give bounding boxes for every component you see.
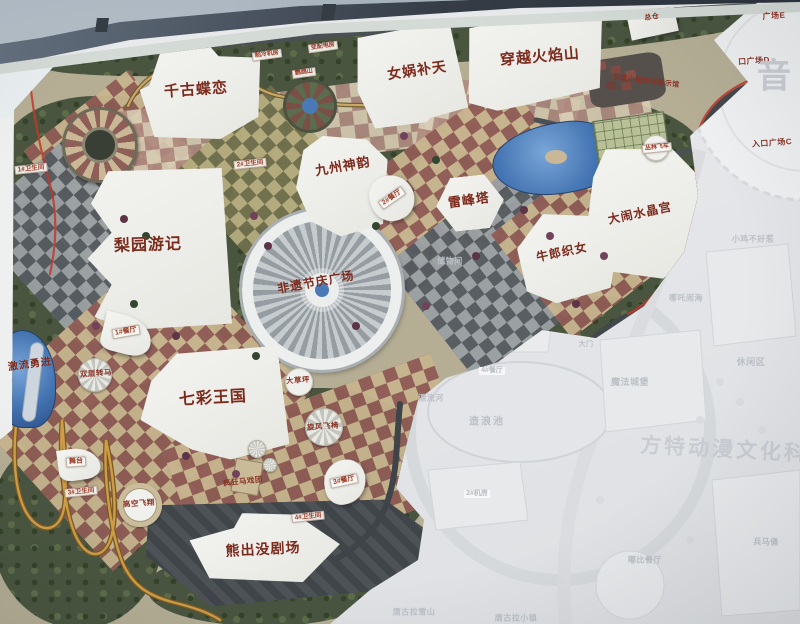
- label-tanggula-xueshan: 唐古拉雪山: [393, 607, 436, 616]
- label-piaoliuhe: 漂流河: [418, 393, 444, 402]
- label-guangchang-e: 广场E: [762, 11, 785, 22]
- label-nezha-naohai: 哪吒闹海: [669, 293, 703, 302]
- label-xiaoji-buhaore: 小鸡不好惹: [732, 234, 775, 243]
- label-xiuxianqu: 休闲区: [737, 357, 766, 367]
- label-damen: 大门: [579, 341, 594, 349]
- park-map-photo: 千古蝶恋女娲补天穿越火焰山总仓九州神韵雷峰塔牛郎织女大闹水晶宫梨园游记七彩王国熊…: [0, 0, 800, 624]
- knoll-yingwushan: [283, 79, 337, 133]
- label-canting-4: 4#餐厅: [479, 367, 505, 375]
- label-dacaoping: 大草坪: [286, 376, 311, 386]
- label-zaolangchi: 造浪池: [469, 416, 505, 428]
- frame-clip-mid: [321, 4, 336, 20]
- ride-carousel-small-1: [248, 440, 266, 458]
- label-bingmayong: 兵马俑: [753, 537, 779, 546]
- label-yin-watermark: 音: [757, 57, 791, 96]
- lake-island: [545, 150, 567, 164]
- label-mofa-chengbao: 魔法城堡: [611, 377, 649, 387]
- label-liyuan-youji: 梨园游记: [114, 236, 183, 257]
- label-jifang-2: 2#机房: [464, 490, 490, 498]
- label-qicai-wangguo: 七彩王国: [179, 388, 248, 410]
- ride-carousel-small-2: [263, 458, 277, 472]
- label-tanggula-xiaozhen: 唐古拉小镇: [495, 613, 538, 622]
- label-chuwujian: 储物间: [437, 256, 463, 265]
- label-dubi-canting: 嘟比餐厅: [628, 555, 662, 564]
- frame-clip-left: [95, 18, 109, 32]
- label-wutai: 舞台: [66, 456, 87, 467]
